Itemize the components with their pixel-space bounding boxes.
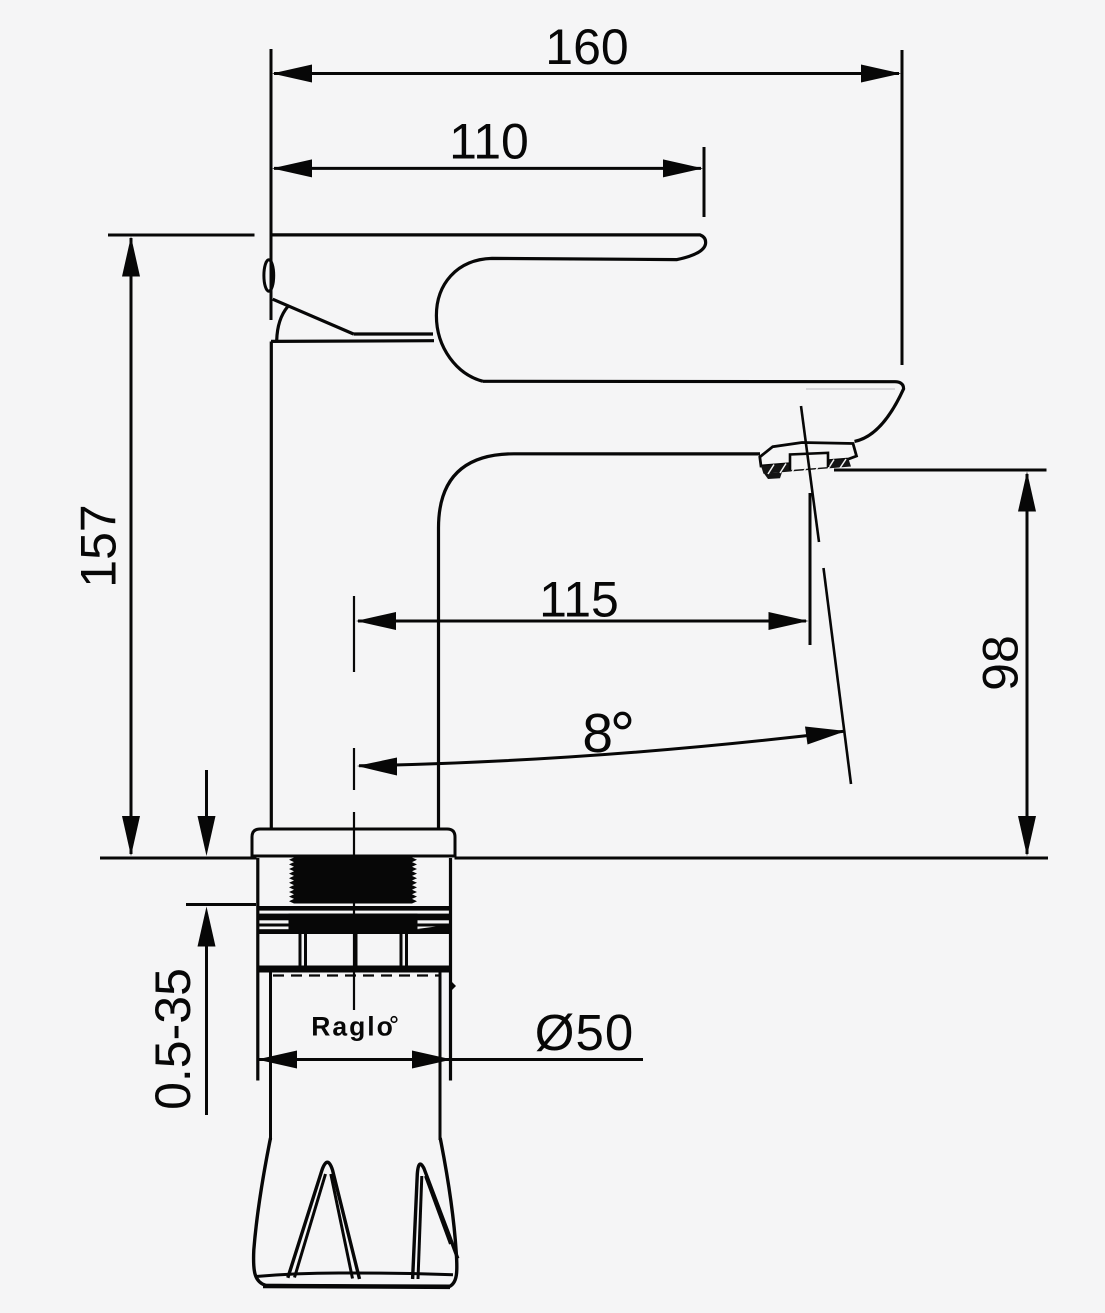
- svg-text:115: 115: [539, 571, 619, 627]
- svg-text:0.5-35: 0.5-35: [145, 968, 201, 1110]
- svg-text:Ø50: Ø50: [535, 1004, 634, 1061]
- svg-text:160: 160: [545, 19, 628, 75]
- svg-text:98: 98: [973, 635, 1029, 691]
- svg-text:Raglo: Raglo: [311, 1012, 395, 1042]
- svg-text:8: 8: [582, 702, 613, 764]
- svg-text:157: 157: [71, 504, 127, 587]
- svg-text:110: 110: [449, 113, 529, 169]
